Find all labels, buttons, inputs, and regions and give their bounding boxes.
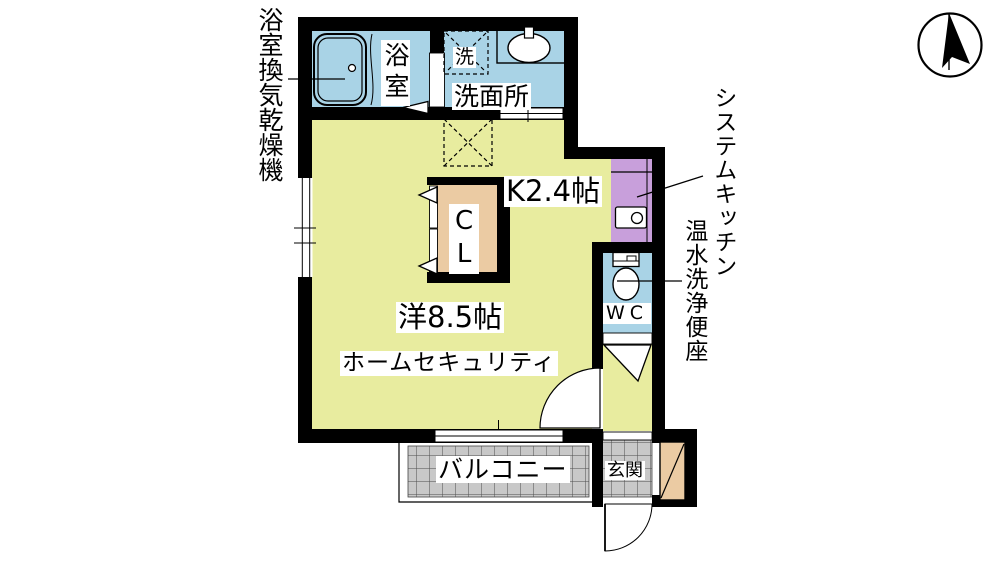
wall-corridor-left-upper bbox=[592, 242, 603, 369]
bathroom-label: 浴室 bbox=[381, 40, 410, 106]
north-arrow-icon bbox=[919, 13, 982, 77]
wall-corridor-left-lower bbox=[592, 429, 603, 507]
kitchen-size-label: K2.4帖 bbox=[504, 176, 602, 207]
system-kitchen-label: システムキッチン bbox=[710, 86, 735, 278]
home-security-label: ホームセキュリティ bbox=[340, 351, 558, 376]
bath-vent-label: 浴室換気乾燥機 bbox=[256, 7, 283, 182]
toilet-icon bbox=[613, 253, 639, 301]
main-room-label: 洋8.5帖 bbox=[396, 302, 504, 333]
washlet-label: 温水洗浄便座 bbox=[681, 219, 706, 363]
floorplan-canvas: 浴室換気乾燥機 浴室 洗 洗面所 K2.4帖 システムキッチン 温水洗浄便座 C… bbox=[0, 0, 1000, 562]
washroom-label: 洗面所 bbox=[452, 83, 531, 110]
balcony-label: バルコニー bbox=[436, 456, 570, 483]
washer-space-label: 洗 bbox=[453, 47, 476, 68]
front-door bbox=[605, 504, 652, 551]
entrance-label: 玄関 bbox=[605, 461, 645, 480]
wall-washroom-right bbox=[564, 17, 578, 159]
closet-label: CL bbox=[449, 204, 479, 274]
entrance-shoe-cabinet bbox=[660, 442, 685, 500]
entrance-step bbox=[603, 432, 652, 440]
wall-step bbox=[564, 147, 665, 159]
wall-bath-divider bbox=[430, 31, 444, 53]
wc-label: WC bbox=[603, 303, 651, 324]
